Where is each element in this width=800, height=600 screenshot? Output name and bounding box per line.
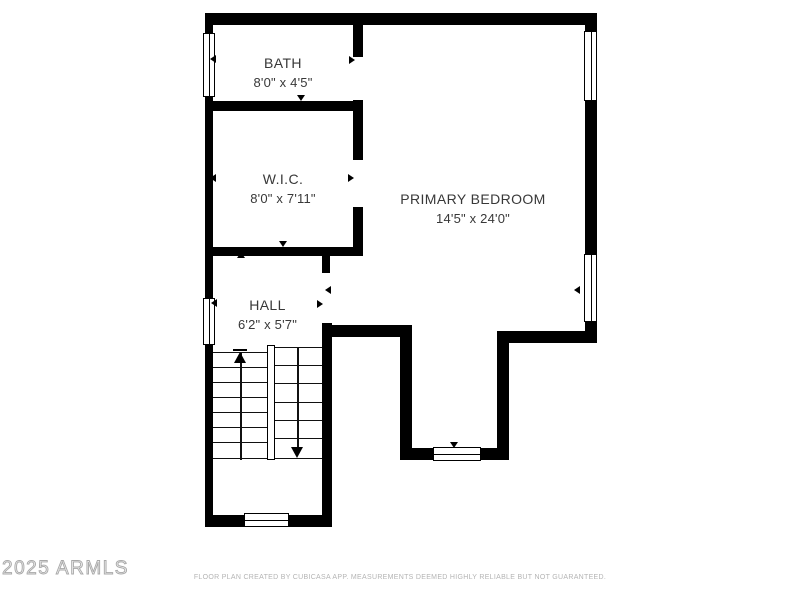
room-dimensions: 6'2" x 5'7" [210, 315, 325, 334]
tick-icon [574, 286, 580, 294]
room-label-bath: BATH 8'0" x 4'5" [213, 54, 353, 92]
room-label-primary-bedroom: PRIMARY BEDROOM 14'5" x 24'0" [373, 190, 573, 228]
room-dimensions: 14'5" x 24'0" [373, 209, 573, 228]
stair-center-rail [267, 345, 275, 460]
wall-hall-door-jamb [322, 256, 330, 273]
room-name: HALL [210, 296, 325, 315]
stair-step [275, 458, 322, 459]
window-bedroom-right-lower [584, 254, 597, 322]
tick-icon [279, 241, 287, 247]
wall-alcove-left [400, 325, 412, 460]
stair-step [275, 383, 322, 384]
wall-hall-to-alcove [322, 325, 412, 337]
wall-wic-bottom [205, 247, 363, 256]
room-label-wic: W.I.C. 8'0" x 7'11" [213, 170, 353, 208]
room-label-hall: HALL 6'2" x 5'7" [210, 296, 325, 334]
room-name: BATH [213, 54, 353, 73]
window-bedroom-right-upper [584, 31, 597, 101]
stair-step [275, 347, 322, 348]
tick-icon [297, 95, 305, 101]
wall-alcove-right [497, 331, 509, 460]
room-dimensions: 8'0" x 4'5" [213, 73, 353, 92]
room-name: PRIMARY BEDROOM [373, 190, 573, 209]
stair-step [275, 438, 322, 439]
wall-bath-wic-right [353, 13, 363, 256]
tick-icon [450, 442, 458, 448]
window-alcove-bottom [433, 447, 481, 461]
tick-icon [325, 286, 331, 294]
room-dimensions: 8'0" x 7'11" [213, 189, 353, 208]
window-stairwell-bottom [244, 513, 289, 527]
wall-top [205, 13, 597, 25]
wall-stair-right [322, 323, 332, 527]
footer-disclaimer: FLOOR PLAN CREATED BY CUBICASA APP. MEAS… [0, 574, 800, 581]
stair-step [275, 402, 322, 403]
tick-icon [237, 252, 245, 258]
stair-step [275, 365, 322, 366]
stair-step [275, 420, 322, 421]
wall-bedroom-bottom-right [497, 331, 597, 343]
tick-icon [449, 19, 457, 25]
door-opening-wic-bedroom [353, 160, 363, 207]
stairs-down-arrow-icon [291, 447, 303, 458]
stairs-down-walkline [297, 347, 299, 450]
stairs [213, 345, 322, 460]
stairs-up-arrow-icon [234, 352, 246, 363]
tick-icon [281, 104, 289, 110]
floor-plan: BATH 8'0" x 4'5" W.I.C. 8'0" x 7'11" PRI… [0, 0, 800, 600]
stairs-up-walkline [240, 353, 242, 460]
tick-icon [296, 19, 304, 25]
room-name: W.I.C. [213, 170, 353, 189]
stairs-up-start-bar [233, 349, 247, 351]
